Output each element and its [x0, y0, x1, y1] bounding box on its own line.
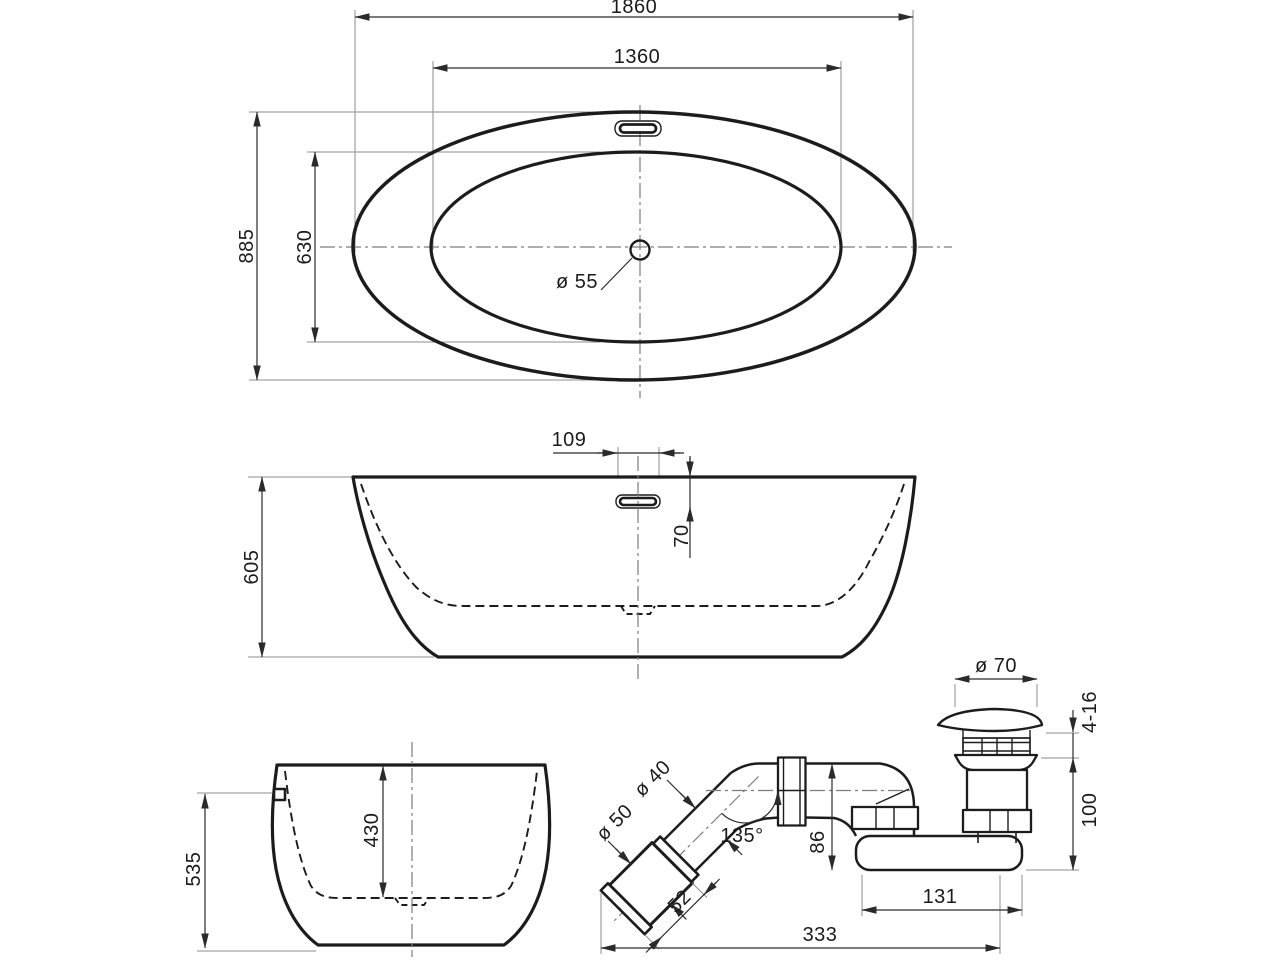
drain-body	[967, 770, 1027, 810]
dim-inner-depth: 430	[361, 813, 383, 848]
dim-overflow-width: 109	[552, 429, 587, 451]
dim-elbow-height: 86	[807, 830, 829, 853]
top-view-centerlines	[320, 105, 952, 398]
top-view: 1860 1360 885 630 ø 55	[236, 0, 952, 398]
dim-overflow-drop: 70	[671, 524, 693, 547]
tub-end-profile	[272, 765, 549, 945]
outlet-nut	[852, 789, 918, 829]
dim-overflow-height: 535	[183, 852, 205, 887]
bathtub-dimension-drawing: 1860 1360 885 630 ø 55	[0, 0, 1280, 960]
outlet-pipe	[856, 836, 1022, 870]
union-nut	[778, 758, 806, 826]
dim-total-length: 333	[803, 924, 838, 946]
drain-grid-collar	[963, 738, 1030, 755]
dim-inner-length: 1360	[614, 46, 661, 68]
end-view: 535 430	[183, 742, 550, 957]
drain-nut	[963, 810, 1031, 832]
dim-overall-length: 1860	[611, 0, 658, 18]
dim-overall-width: 885	[236, 229, 258, 264]
dim-adjust-range: 4-16	[1079, 691, 1101, 733]
overflow-slot-top	[615, 121, 661, 136]
dim-drain-diameter: ø 55	[556, 271, 598, 293]
side-view: 605 109 70	[241, 429, 915, 680]
top-view-extension-lines	[249, 10, 913, 380]
dim-tub-height: 605	[241, 550, 263, 585]
pop-up-drain	[938, 709, 1042, 843]
dim-drain-height: 100	[1079, 793, 1101, 828]
drain-flange	[955, 755, 1037, 770]
dim-outlet-length: 131	[923, 886, 958, 908]
drain-leader-line	[601, 258, 632, 290]
dim-elbow-angle: 135°	[720, 825, 763, 847]
waste-kit-detail: ø 70 4-16 100 86 131 333 135° ø 40 ø 50 …	[592, 655, 1101, 954]
dim-inner-width: 630	[294, 230, 316, 265]
dim-pipe-diameter: ø 40	[630, 756, 675, 801]
dim-cap-diameter: ø 70	[975, 655, 1017, 677]
dim-cuff-diameter: ø 50	[592, 800, 637, 845]
pop-up-cap	[938, 709, 1042, 731]
drawing-canvas: 1860 1360 885 630 ø 55	[0, 0, 1280, 960]
overflow-hole-end	[274, 789, 285, 800]
